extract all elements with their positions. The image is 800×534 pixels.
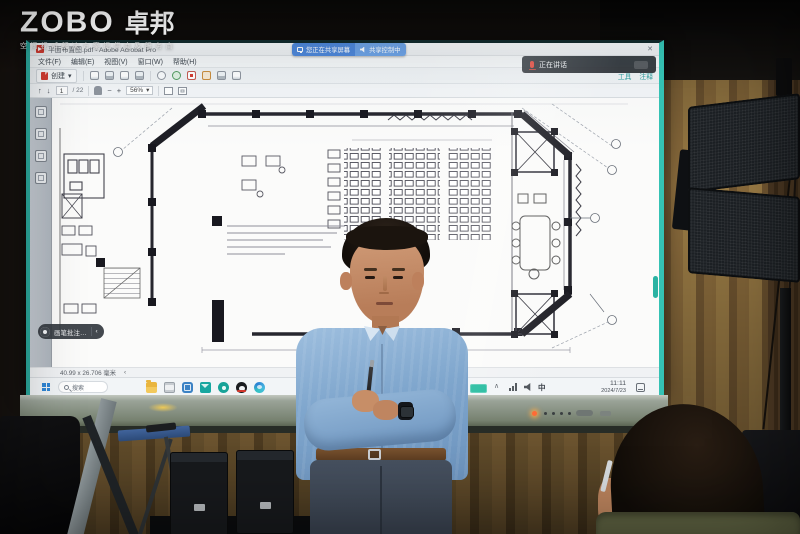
file-explorer-icon[interactable]: [146, 382, 157, 393]
speaker-icon: [360, 47, 366, 53]
mail-icon[interactable]: [200, 382, 211, 393]
annotation-tool-icon: [40, 327, 50, 337]
zoom-level-select[interactable]: 56% ▾: [126, 86, 153, 95]
annotation-floating-toolbar[interactable]: 画笔批注… ‹: [38, 324, 104, 339]
print-icon[interactable]: [120, 71, 129, 80]
logo-brand-cn: 卓邦: [125, 4, 175, 40]
bookmarks-icon[interactable]: [35, 128, 47, 140]
dark-speaker-left: [0, 416, 80, 534]
bezel-button[interactable]: [560, 412, 563, 415]
ir-sensor-slot: [576, 410, 593, 416]
presenter-jeans: [310, 460, 452, 534]
tray-expand-icon[interactable]: ∧: [494, 382, 499, 390]
sharing-control-button[interactable]: 共享控制中: [355, 43, 405, 56]
chat-app-icon[interactable]: [218, 382, 229, 393]
signatures-icon[interactable]: [35, 172, 47, 184]
menu-file[interactable]: 文件(F): [38, 57, 61, 67]
speaking-label: 正在讲话: [539, 60, 567, 70]
zoom-out-icon[interactable]: −: [107, 86, 111, 95]
sharing-status: 您正在共享屏幕: [292, 43, 355, 56]
share-icon[interactable]: [217, 71, 226, 80]
fit-width-icon[interactable]: [164, 87, 173, 95]
presenter-hairline: [346, 226, 428, 250]
zoom-in-icon[interactable]: +: [117, 86, 121, 95]
presenter: [280, 218, 480, 534]
taskbar-clock[interactable]: 11:11 2024/7/23: [558, 380, 626, 395]
stamp-icon[interactable]: [187, 71, 196, 80]
highlight-icon[interactable]: [172, 71, 181, 80]
create-button[interactable]: 创建 ▾: [36, 69, 77, 83]
presenter-watch: [398, 402, 413, 420]
acrobat-toolbar-nav: ↑ ↓ 1 / 22 − + 56% ▾: [30, 84, 659, 98]
document-app-icon[interactable]: [164, 382, 175, 393]
page-thumbnails-icon[interactable]: [35, 106, 47, 118]
phone-link-icon[interactable]: [182, 382, 193, 393]
notification-center-icon[interactable]: [636, 383, 645, 392]
presenter-nose-shadow: [379, 292, 389, 294]
presenter-eyebrow: [364, 268, 377, 271]
bezel-button[interactable]: [544, 412, 547, 415]
logo-brand-en: ZOBO: [20, 7, 115, 39]
save-icon[interactable]: [105, 71, 114, 80]
speaking-indicator: 正在讲话: [522, 56, 656, 73]
belt-buckle: [368, 449, 381, 460]
open-file-icon[interactable]: [90, 71, 99, 80]
presenter-eye: [365, 276, 375, 279]
presenter-ear: [412, 272, 424, 290]
clock-time: 11:11: [558, 380, 626, 388]
hand-tool-icon[interactable]: [94, 86, 102, 95]
start-button[interactable]: [42, 383, 50, 391]
toolbar-separator: [150, 71, 151, 81]
attachment-icon[interactable]: [202, 71, 211, 80]
audience-member: [596, 400, 800, 534]
menu-edit[interactable]: 编辑(E): [71, 57, 94, 67]
close-icon[interactable]: ✕: [647, 46, 653, 53]
power-indicator-light: [532, 411, 537, 416]
annotation-tool-label: 画笔批注…: [54, 327, 87, 337]
toolbar-separator: [158, 86, 159, 96]
status-chevron-icon[interactable]: ‹: [124, 369, 126, 376]
ceiling-bracket: [776, 58, 792, 96]
attachments-icon[interactable]: [35, 150, 47, 162]
presenter-nose: [383, 276, 387, 291]
microphone-icon: [530, 61, 534, 68]
line-array-speaker-bottom: [688, 187, 800, 283]
export-icon[interactable]: [232, 71, 241, 80]
next-page-icon[interactable]: ↓: [47, 86, 51, 95]
search-label: 搜索: [72, 383, 84, 392]
email-icon[interactable]: [135, 71, 144, 80]
volume-icon[interactable]: [524, 383, 533, 391]
menu-view[interactable]: 视图(V): [104, 57, 127, 67]
menu-help[interactable]: 帮助(H): [173, 57, 197, 67]
network-icon[interactable]: [509, 383, 518, 391]
monitor-icon: [297, 47, 303, 52]
bezel-button[interactable]: [568, 412, 571, 415]
page-dimensions-label: 40.99 x 26.706 毫米: [60, 368, 116, 377]
bookshelf-speaker-left: [170, 452, 228, 534]
taskbar-search[interactable]: 搜索: [58, 381, 108, 393]
presenter-mouth: [376, 302, 393, 305]
presenter-eyebrow: [392, 268, 405, 271]
presenter-ear: [340, 272, 352, 290]
audience-shoulder: [596, 512, 800, 534]
edge-browser-icon[interactable]: [254, 382, 265, 393]
photo-scene: 平面布置图.pdf - Adobe Acrobat Pro ✕ 文件(F) 编辑…: [0, 0, 800, 534]
clock-date: 2024/7/23: [558, 388, 626, 395]
fit-page-icon[interactable]: [178, 87, 187, 95]
pill-divider: [91, 327, 92, 336]
toolbar-separator: [88, 86, 89, 96]
presenter-eye: [393, 276, 403, 279]
search-icon: [64, 385, 69, 390]
page-number-input[interactable]: 1: [56, 86, 68, 95]
menu-window[interactable]: 窗口(W): [138, 57, 163, 67]
scrollbar-thumb[interactable]: [653, 276, 658, 298]
create-pdf-icon: [41, 72, 48, 80]
collapse-chevron-icon[interactable]: ‹: [96, 328, 98, 335]
presenter-hand: [373, 400, 399, 420]
bezel-reflection: [148, 403, 178, 412]
page-total-label: / 22: [73, 87, 84, 94]
logo-tagline: 空间视听解决方案提供商及服务商: [20, 41, 176, 51]
zobo-logo: ZOBO 卓邦 空间视听解决方案提供商及服务商: [20, 4, 176, 51]
qq-icon[interactable]: [236, 382, 247, 393]
line-array-speaker-top: [688, 93, 800, 193]
ime-indicator[interactable]: 中: [538, 382, 546, 393]
previous-page-icon[interactable]: ↑: [38, 86, 42, 95]
bezel-button[interactable]: [552, 412, 555, 415]
conference-app-logo: [634, 61, 648, 69]
screen-sharing-banner[interactable]: 您正在共享屏幕 共享控制中: [292, 43, 406, 56]
toolbar-separator: [83, 71, 84, 81]
comment-icon[interactable]: [157, 71, 166, 80]
pen-tip: [370, 360, 375, 367]
